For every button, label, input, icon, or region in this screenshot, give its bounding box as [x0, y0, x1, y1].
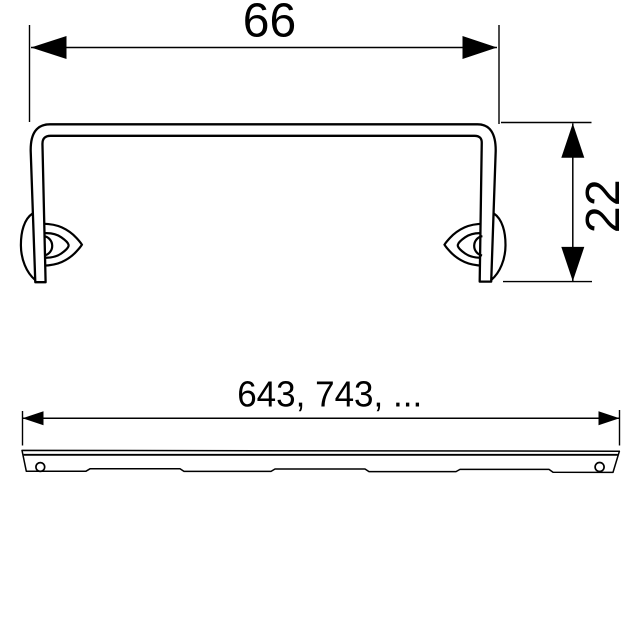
- svg-text:22: 22: [576, 179, 630, 233]
- svg-text:643, 743, ...: 643, 743, ...: [237, 374, 422, 415]
- svg-text:66: 66: [243, 0, 296, 47]
